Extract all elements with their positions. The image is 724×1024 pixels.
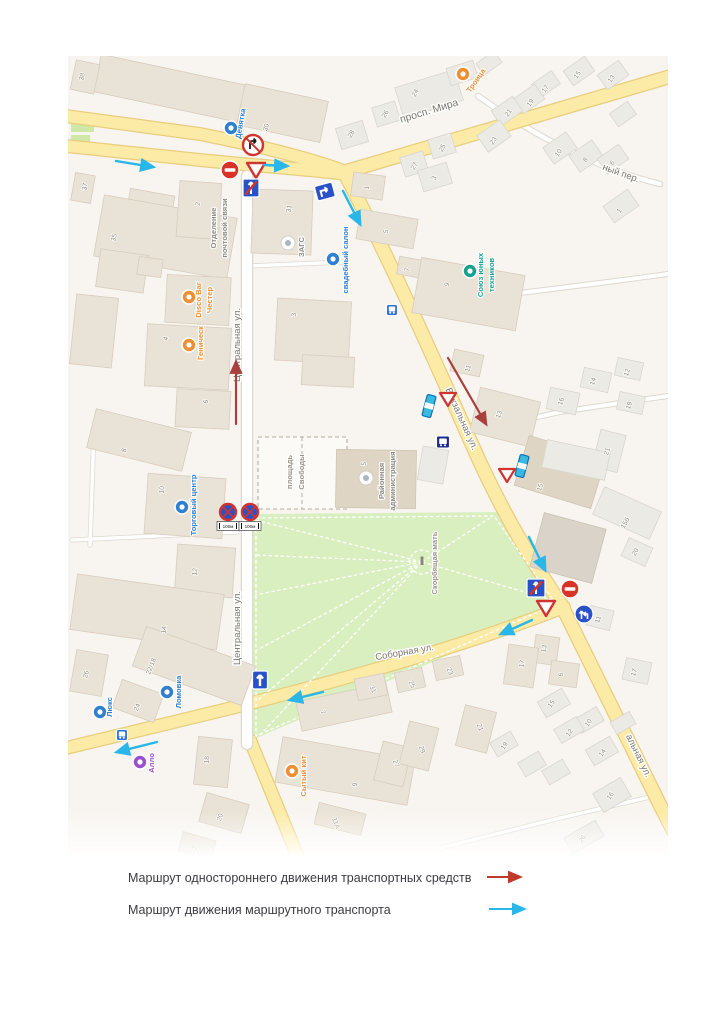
- poi-disco-bar-label-2: Честер: [205, 287, 214, 314]
- traffic-scheme-map: 38 37 35 2 31 30 24 26 28 15 13 17 19 21…: [0, 0, 724, 1024]
- building: [301, 355, 354, 388]
- zone-plate-text: 100м: [223, 524, 234, 529]
- building: [417, 446, 449, 484]
- poi-shopping-center-label: Торговый центр: [189, 474, 198, 535]
- building-number: 10: [159, 486, 167, 494]
- poi-allo-label: Алло: [147, 753, 156, 773]
- building: [144, 324, 231, 390]
- map-fade: [68, 812, 668, 858]
- monument-icon: [420, 556, 423, 565]
- transport-route-arrow: [264, 165, 287, 166]
- poi-genichesk-label: Геническ: [196, 326, 205, 360]
- poi-allo-icon: [133, 755, 147, 769]
- poi-wedding-salon-label: свадебный салон: [341, 226, 350, 293]
- poi-zags-label: ЗАГС: [297, 237, 306, 257]
- poi-wedding-salon-icon: [326, 252, 340, 266]
- building-number: 31: [285, 204, 293, 213]
- poi-young-technicians-label-2: техников: [487, 258, 496, 293]
- poi-administration-label-1: Районная: [377, 463, 386, 499]
- building-number: 18: [204, 756, 212, 764]
- one-way-end-sign-icon: [527, 579, 545, 597]
- building: [397, 256, 422, 278]
- zone-plate-icon: 100м: [239, 522, 261, 531]
- bus-stop-icon: [387, 305, 398, 316]
- building-number: 13: [540, 644, 548, 653]
- poi-young-technicians-icon: [463, 264, 477, 278]
- building-number: 17: [518, 659, 526, 668]
- page: { "map": { "streets": { "prosp_mira": "п…: [0, 0, 724, 1024]
- poi-genichesk-icon: [182, 338, 196, 352]
- building: [175, 389, 231, 430]
- poi-disco-bar-label-1: Disco Bar: [194, 282, 203, 317]
- poi-young-technicians-label-1: Союз юных: [476, 252, 485, 297]
- poi-administration-label-2: администрация: [388, 451, 397, 510]
- freedom-square-label-2: Свободы: [297, 454, 306, 489]
- no-entry-sign-icon: [221, 161, 239, 179]
- legend-one-way-label: Маршрут одностороннего движения транспор…: [128, 871, 472, 885]
- bus-stop-icon: [117, 730, 128, 741]
- mandatory-direction-sign-icon: [575, 605, 593, 623]
- poi-zags-icon: [281, 236, 295, 250]
- building-number: 37: [81, 182, 89, 191]
- poi-post-office-label-2: почтовой связи: [220, 198, 229, 258]
- bus-stop-navy-icon: [437, 436, 450, 448]
- poi-sytyi-kit-label: Сытый кит: [299, 755, 308, 796]
- no-entry-sign-icon: [561, 580, 579, 598]
- one-way-end-sign-icon: [243, 179, 259, 197]
- building-number: 12: [192, 568, 200, 576]
- legend: Маршрут одностороннего движения транспор…: [128, 871, 524, 917]
- poi-shopping-center-icon: [175, 500, 189, 514]
- building: [194, 736, 233, 787]
- poi-lyuks-label: Люкс: [105, 697, 114, 717]
- building-administration: [335, 449, 416, 508]
- one-way-sign-icon: [253, 671, 268, 689]
- poi-post-office-label-1: Отделение: [209, 208, 218, 249]
- poi-lomovka-icon: [160, 685, 174, 699]
- building: [69, 294, 118, 368]
- street-label-centralnaya: Центральная ул.: [232, 591, 243, 665]
- building: [137, 256, 163, 277]
- legend-transport-label: Маршрут движения маршрутного транспорта: [128, 903, 391, 917]
- freedom-square-label-1: площадь: [285, 455, 294, 489]
- monument-label: Скорбящая мать: [430, 531, 439, 594]
- poi-sytyi-kit-icon: [285, 764, 299, 778]
- poi-administration-icon: [359, 471, 373, 485]
- building-number: 14: [161, 626, 169, 634]
- map-area: 38 37 35 2 31 30 24 26 28 15 13 17 19 21…: [66, 51, 684, 862]
- zone-plate-icon: 100м: [217, 522, 239, 531]
- zone-plate-text: 100м: [245, 524, 256, 529]
- no-right-turn-sign-icon: [243, 135, 263, 155]
- street-label-centralnaya: Центральная ул.: [232, 308, 243, 382]
- building: [274, 298, 351, 364]
- poi-troitsa-icon: [456, 67, 470, 81]
- poi-lomovka-label: Ломовка: [174, 675, 183, 708]
- no-stopping-sign-icon: [242, 504, 258, 520]
- no-stopping-sign-icon: [220, 504, 236, 520]
